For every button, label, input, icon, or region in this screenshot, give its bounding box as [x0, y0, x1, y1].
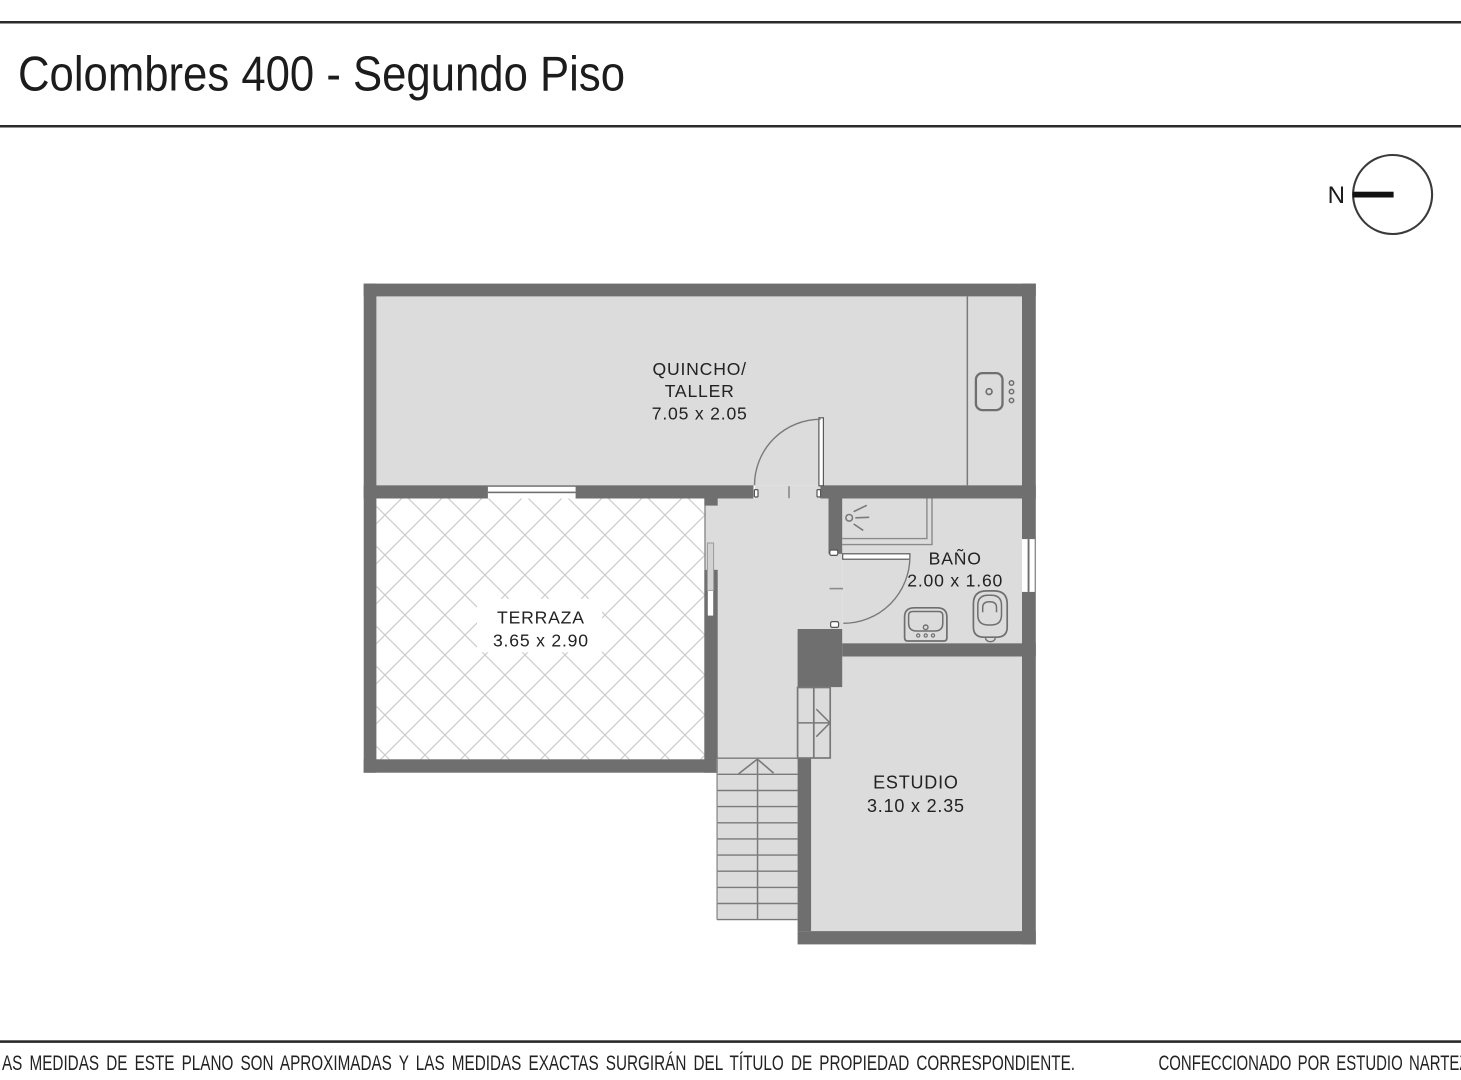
svg-text:7.05 x 2.05: 7.05 x 2.05	[652, 404, 748, 424]
svg-text:CONFECCIONADO POR ESTUDIO NART: CONFECCIONADO POR ESTUDIO NARTEZ	[1159, 1052, 1461, 1075]
svg-text:TALLER: TALLER	[665, 381, 735, 401]
svg-text:3.10 x 2.35: 3.10 x 2.35	[867, 796, 965, 816]
svg-text:BAÑO: BAÑO	[929, 548, 982, 569]
svg-text:ESTUDIO: ESTUDIO	[873, 773, 959, 793]
svg-text:N: N	[1328, 182, 1345, 209]
svg-text:QUINCHO/: QUINCHO/	[653, 359, 747, 379]
svg-text:3.65 x 2.90: 3.65 x 2.90	[493, 631, 589, 651]
svg-text:AS MEDIDAS DE ESTE PLANO SON: AS MEDIDAS DE ESTE PLANO SON APROXIMADAS…	[2, 1052, 1075, 1075]
svg-text:Colombres 400 - Segundo Piso: Colombres 400 - Segundo Piso	[18, 47, 625, 101]
svg-text:2.00 x 1.60: 2.00 x 1.60	[907, 571, 1003, 591]
svg-text:TERRAZA: TERRAZA	[497, 607, 585, 627]
